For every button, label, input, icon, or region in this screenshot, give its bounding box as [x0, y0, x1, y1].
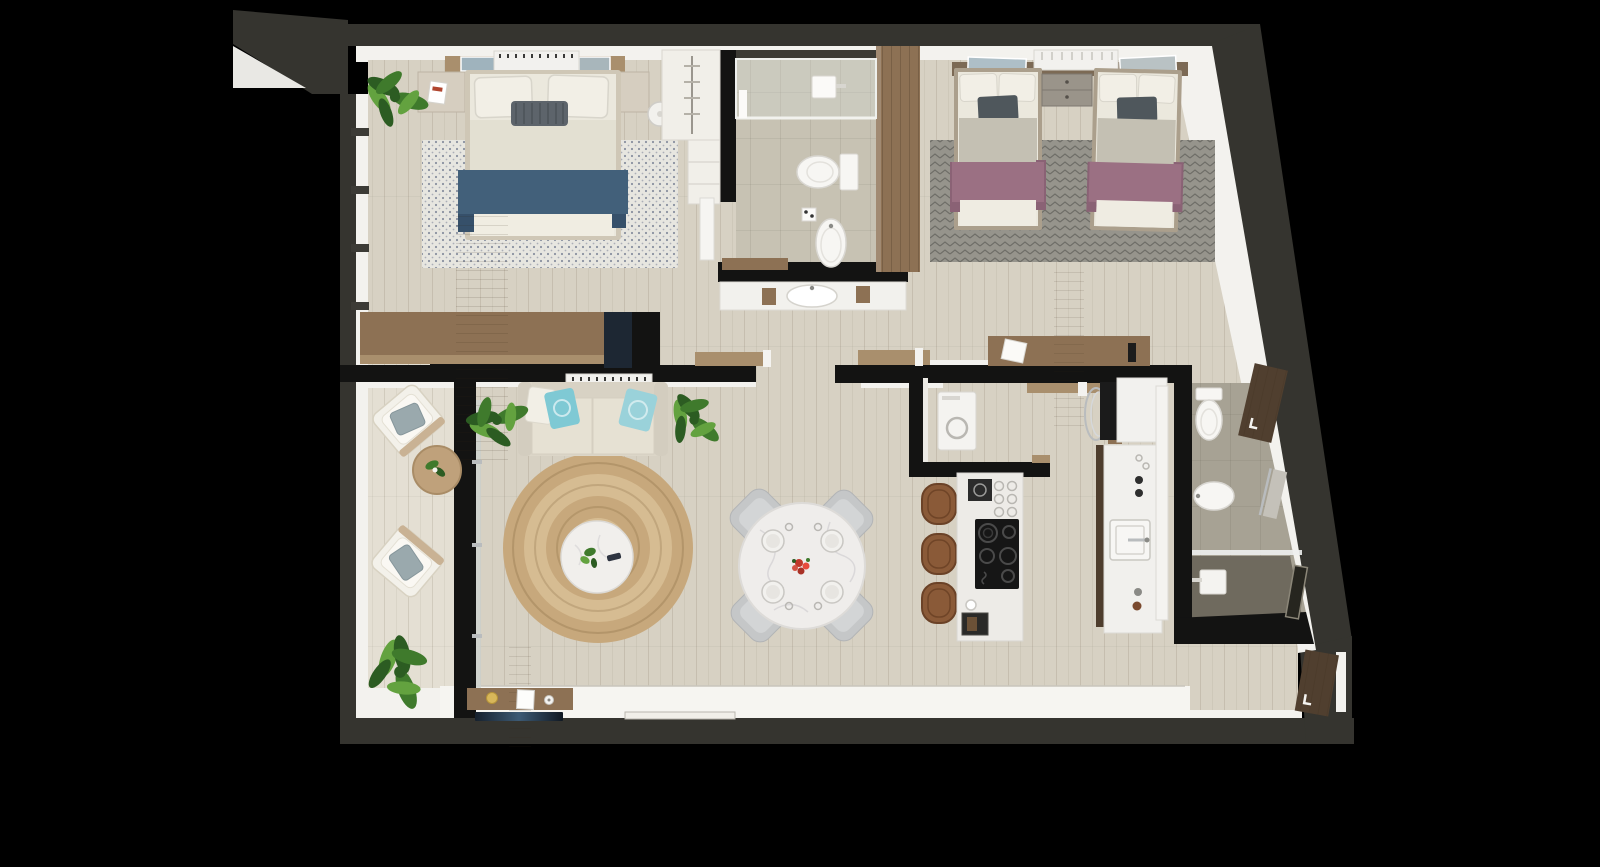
open-door-master [695, 352, 770, 366]
photo-frame [516, 690, 534, 710]
toilet2 [1196, 388, 1222, 440]
coffee-table [561, 521, 633, 593]
door-handle [472, 543, 482, 547]
flat-tv-panel [475, 712, 563, 721]
toilet [797, 154, 858, 190]
twin-bed-left [950, 68, 1046, 230]
clock [487, 693, 498, 704]
wall-column [632, 312, 660, 382]
shared-nightstand [1042, 74, 1092, 106]
bathroom1-left-wall [720, 50, 736, 202]
floor-plan-canvas [0, 0, 1600, 867]
door-jamb [915, 348, 923, 366]
paper [1001, 339, 1027, 363]
wall-art [461, 57, 498, 71]
knob [1135, 476, 1143, 484]
shelf [802, 208, 816, 221]
bathroom1-door [700, 198, 714, 260]
bathroom2-door [1156, 386, 1168, 620]
bar-stool [922, 534, 956, 574]
nightstand-right [617, 72, 649, 112]
side-table [413, 446, 461, 494]
door-jamb [763, 350, 771, 367]
knob [1134, 588, 1142, 596]
mug [966, 600, 976, 610]
bathroom2-left-wall [1174, 383, 1192, 640]
radiator-panel [1034, 50, 1118, 70]
wall-art [579, 57, 610, 71]
bottom-wall [340, 718, 1354, 744]
vanity [720, 282, 906, 310]
knob [1133, 602, 1142, 611]
door-handle [472, 460, 482, 464]
shower2-glass [1192, 550, 1302, 555]
bar-stool [922, 583, 956, 623]
sofa [518, 382, 668, 456]
door-jamb [1078, 382, 1087, 396]
floor-track [625, 712, 735, 719]
dining-area [725, 484, 878, 647]
shower-head [1200, 570, 1226, 594]
wardrobe-panel [876, 46, 920, 272]
twin-bed-right [1086, 68, 1186, 232]
washing-machine [938, 392, 976, 450]
phone-dock [1128, 343, 1136, 362]
double-bed [458, 70, 628, 240]
blue-throw [458, 170, 628, 214]
dining-table [739, 503, 865, 629]
floor-plan-image [0, 0, 1600, 867]
magazine [428, 81, 448, 104]
door-handle [472, 634, 482, 638]
knob [1135, 489, 1143, 497]
bar-stool [922, 484, 956, 524]
cooktop [975, 519, 1019, 589]
coffee-machine [968, 479, 992, 501]
appliance-front [1100, 382, 1117, 440]
kitchen-island [957, 473, 1023, 641]
top-wall [348, 24, 1260, 46]
tv-panel [604, 312, 632, 368]
pedestal-sink [816, 219, 846, 267]
towel [739, 90, 747, 118]
open-door-utility [1027, 383, 1100, 393]
door-shelf-tip [1032, 455, 1050, 463]
shower-head [812, 76, 836, 98]
shower-glass [736, 59, 876, 118]
counter-sink [1110, 520, 1150, 560]
bench [722, 258, 788, 270]
